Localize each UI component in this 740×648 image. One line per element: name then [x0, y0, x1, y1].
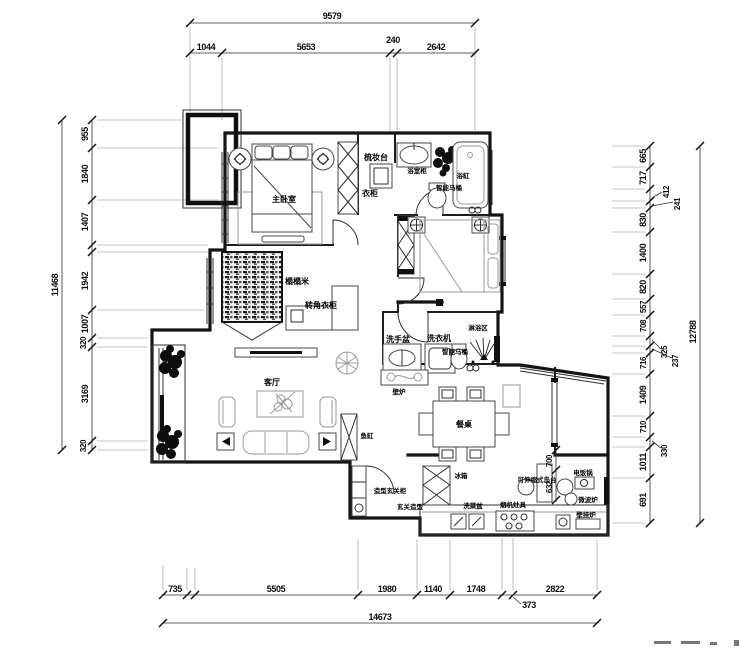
- label-entry-cabinet: 造型玄关柜: [374, 486, 407, 495]
- dim-left-seg1: 1840: [80, 164, 90, 183]
- dim-chain-right: 12788 665 717 412 241 830 1400 820 557 7…: [638, 142, 704, 527]
- dim-left-seg0: 955: [80, 127, 90, 141]
- label-hand-basin: 洗手盆: [386, 334, 411, 344]
- sofa: [243, 431, 309, 454]
- label-fireplace: 壁炉: [393, 387, 407, 396]
- dim-left-seg3: 1942: [80, 271, 90, 290]
- ceiling-speaker: [229, 148, 251, 170]
- dim-right-seg4: 830: [638, 213, 648, 227]
- label-fish-tank: 鱼缸: [361, 431, 375, 440]
- laundry-shower: 洗手盆 洗衣机 智能马桶 淋浴区: [383, 323, 495, 373]
- wardrobe-dressing: 衣柜 梳妆台: [338, 142, 392, 214]
- label-dining-table: 餐桌: [455, 419, 473, 429]
- chair: [419, 413, 433, 435]
- dim-bottom-seg2: 1980: [378, 584, 397, 594]
- dim-left-overall: 11468: [50, 273, 60, 296]
- pillow: [273, 146, 290, 159]
- pillow: [255, 146, 272, 159]
- wall-pier-kitchen: [604, 477, 609, 505]
- tatami-platform: [222, 252, 282, 322]
- dim-right-seg1: 717: [638, 171, 648, 185]
- dim-bottom-seg4: 1748: [467, 584, 486, 594]
- entry-cabinet-unit: [352, 466, 366, 516]
- plant: [156, 425, 182, 459]
- label-dressing-table: 梳妆台: [363, 152, 388, 162]
- dim-bottom-seg1: 5505: [267, 584, 286, 594]
- microwave-unit: 微波炉: [565, 493, 598, 505]
- dim-bottom-overall: 14673: [368, 612, 391, 622]
- fish-tank-unit: 鱼缸: [341, 414, 374, 460]
- label-microwave: 微波炉: [577, 495, 598, 504]
- dim-bottom-seg0: 735: [168, 584, 182, 594]
- label-master-bedroom: 主卧室: [272, 194, 296, 204]
- dining: 餐桌: [419, 385, 520, 461]
- dim-island-width: 632: [545, 480, 554, 493]
- dim-right-seg13: 710: [639, 420, 648, 433]
- wall-boiler-unit: 壁挂炉: [556, 510, 600, 529]
- label-wall-boiler: 壁挂炉: [576, 510, 596, 519]
- dim-top-seg2: 240: [386, 35, 400, 45]
- dim-left-seg6: 3169: [80, 384, 90, 403]
- label-bathtub: 浴缸: [457, 171, 471, 180]
- dim-top-seg3: 2642: [427, 42, 446, 52]
- label-corner-wardrobe: 转角衣柜: [305, 300, 337, 310]
- label-veg-sink: 洗菜盆: [463, 501, 483, 510]
- rice-cooker-unit: 电饭锅: [573, 468, 594, 489]
- dim-island-depth: 700: [545, 454, 554, 467]
- bedroom-2: [398, 216, 500, 292]
- dim-left-seg2: 1407: [80, 212, 90, 231]
- label-washing-machine: 洗衣机: [427, 333, 451, 343]
- floor-speaker: [319, 433, 336, 450]
- floor-plan-page: 9579 1044 5653 240 2642 11468 955 1840 1…: [0, 0, 740, 648]
- label-fridge: 冰箱: [455, 471, 469, 480]
- label-wardrobe: 衣柜: [362, 188, 378, 198]
- dim-left-seg4: 1007: [80, 314, 90, 333]
- dim-right-seg14: 330: [660, 444, 669, 457]
- floor-speaker: [217, 433, 234, 450]
- label-bath-cabinet: 浴室柜: [407, 166, 427, 175]
- label-living-room: 客厅: [263, 377, 280, 387]
- label-smart-toilet-2: 智能马桶: [442, 347, 469, 356]
- floor-plan-canvas: 9579 1044 5653 240 2642 11468 955 1840 1…: [0, 0, 740, 648]
- fireplace-unit: 壁炉: [381, 370, 428, 396]
- dim-chain-left: 11468 955 1840 1407 1942 1007 320 3169 3…: [50, 116, 96, 454]
- dim-right-seg0: 665: [638, 149, 648, 163]
- label-rice-cooker: 电饭锅: [573, 468, 593, 477]
- door-master: [333, 220, 358, 245]
- dim-right-seg6: 820: [638, 280, 648, 294]
- armchair: [219, 397, 235, 427]
- ceiling-speaker: [312, 148, 334, 170]
- dim-top-seg0: 1044: [197, 42, 216, 52]
- dim-left-seg7: 320: [79, 439, 88, 452]
- dim-top-seg1: 5653: [297, 42, 316, 52]
- dim-top-overall: 9579: [323, 11, 342, 21]
- dim-chain-bottom: 735 5505 1980 1140 1748 373 2822 14673: [159, 584, 601, 627]
- dim-right-overall: 12788: [688, 320, 698, 343]
- pillow: [488, 258, 498, 288]
- bathroom: 浴室柜 浴缸 智能马桶: [397, 142, 488, 213]
- dim-bottom-seg3: 1140: [424, 584, 442, 594]
- extension-lines: [97, 28, 645, 590]
- dim-chain-top: 9579 1044 5653 240 2642: [186, 11, 479, 57]
- dim-right-seg3: 241: [673, 197, 682, 210]
- dim-left-seg5: 320: [79, 336, 88, 349]
- label-shower-area: 淋浴区: [468, 323, 488, 332]
- chair: [495, 413, 509, 435]
- smart-toilet-2: [451, 344, 467, 369]
- dim-right-seg12: 1409: [638, 385, 648, 404]
- dim-right-seg5: 1400: [638, 243, 648, 262]
- entry: 造型玄关柜 玄关造型: [352, 466, 424, 516]
- pillow: [291, 146, 308, 159]
- table-plant: [270, 392, 295, 414]
- dim-right-seg11: 716: [639, 356, 648, 369]
- dim-right-seg16: 691: [638, 493, 648, 507]
- dim-right-seg7: 557: [639, 300, 648, 313]
- window-dining-right: [551, 378, 558, 447]
- side-chair: [503, 385, 520, 407]
- wall-pier-shower: [494, 336, 500, 362]
- ceiling-speaker: [408, 217, 425, 233]
- dim-right-seg10: 237: [671, 354, 680, 367]
- shower-spray: [470, 338, 495, 364]
- label-tatami: 榻榻米: [285, 276, 310, 286]
- hall-decor-ball: [336, 352, 358, 374]
- dim-right-seg8: 708: [639, 319, 648, 332]
- label-smart-toilet: 智能马桶: [436, 183, 463, 192]
- dim-bottom-seg6: 2822: [546, 584, 565, 594]
- master-bedroom: 主卧室: [229, 144, 334, 244]
- dim-right-seg15: 1011: [638, 453, 648, 471]
- armchair: [320, 397, 336, 427]
- label-hood-stove: 烟机灶具: [500, 500, 527, 509]
- dim-bottom-seg5: 373: [522, 600, 536, 610]
- bed-bench: [262, 236, 304, 242]
- fridge-unit: 冰箱: [423, 466, 468, 505]
- dim-right-seg2: 412: [662, 185, 671, 198]
- ceiling-speaker: [472, 217, 489, 233]
- watermark-fragment: [654, 640, 739, 646]
